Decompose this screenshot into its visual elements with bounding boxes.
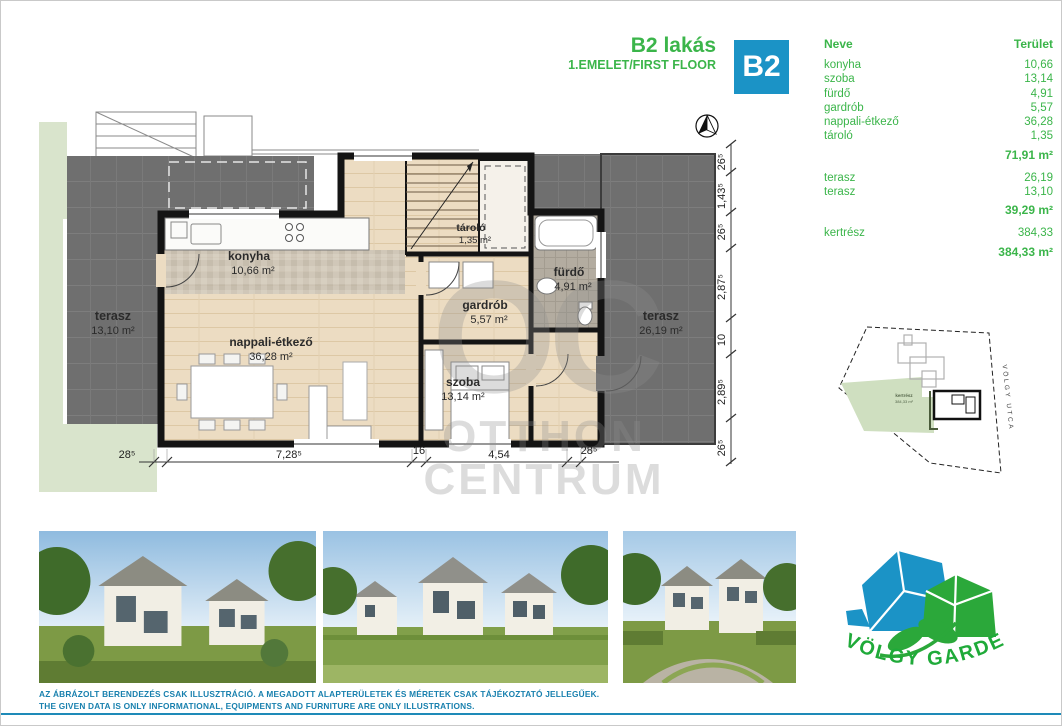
svg-text:1,35 m²: 1,35 m² <box>459 235 491 246</box>
label-terasz-left: terasz <box>95 309 131 323</box>
room-area: 5,57 <box>1031 101 1053 115</box>
area-table: Neve Terület konyha10,66 szoba13,14 fürd… <box>824 37 1053 259</box>
svg-text:13,14 m²: 13,14 m² <box>441 391 485 403</box>
table-row: gardrób5,57 <box>824 101 1053 115</box>
room-area: 1,35 <box>1031 129 1053 143</box>
street-name: VÖLGY UTCA <box>1001 364 1016 431</box>
room-area: 13,10 <box>1024 185 1053 199</box>
disclaimer-line-en: THE GIVEN DATA IS ONLY INFORMATIONAL, EQ… <box>39 701 799 713</box>
svg-text:28⁵: 28⁵ <box>119 449 136 461</box>
svg-text:36,28 m²: 36,28 m² <box>249 351 293 363</box>
room-area: 10,66 <box>1024 58 1053 72</box>
label-furdo: fürdő <box>554 265 585 279</box>
table-row: kertrész384,33 <box>824 226 1053 240</box>
label-tarolo: tároló <box>456 222 485 234</box>
table-row: fürdő4,91 <box>824 87 1053 101</box>
table-row: terasz13,10 <box>824 185 1053 199</box>
dimension-chain-right: 26⁵ 1,43⁵ 26⁵ 2,87⁵ 10 2,89⁵ 26⁵ <box>716 140 736 466</box>
svg-text:4,91 m²: 4,91 m² <box>554 281 592 293</box>
col-name-header: Neve <box>824 37 853 51</box>
subtotal-terrace: 39,29 m² <box>824 203 1053 217</box>
svg-text:4,54: 4,54 <box>488 449 509 461</box>
svg-text:10: 10 <box>716 334 728 346</box>
unit-badge: B2 <box>734 40 789 94</box>
room-name: gardrób <box>824 101 864 115</box>
exterior-photo-3 <box>623 531 796 683</box>
svg-text:1,43⁵: 1,43⁵ <box>716 183 728 209</box>
area-table-header: Neve Terület <box>824 37 1053 51</box>
exterior-photo-2 <box>323 531 608 683</box>
floorplan-sheet: B2 lakás 1.EMELET/FIRST FLOOR B2 Neve Te… <box>0 0 1062 726</box>
svg-text:2,87⁵: 2,87⁵ <box>716 274 728 300</box>
col-area-header: Terület <box>1014 37 1053 51</box>
room-name: fürdő <box>824 87 850 101</box>
page-title: B2 lakás <box>421 34 716 58</box>
kitchen-furniture <box>165 218 369 250</box>
floor-plan: OC OTTHON CENTRUM konyha 10,66 m² nappal… <box>39 104 744 504</box>
room-name: kertrész <box>824 226 865 240</box>
north-arrow-icon <box>696 115 718 137</box>
table-row: tároló1,35 <box>824 129 1053 143</box>
label-terasz-right: terasz <box>643 309 679 323</box>
disclaimer-line-hu: AZ ÁBRÁZOLT BERENDEZÉS CSAK ILLUSZTRÁCIÓ… <box>39 689 799 701</box>
room-area: 26,19 <box>1024 171 1053 185</box>
subtotal-apartment: 71,91 m² <box>824 148 1053 162</box>
table-row: nappali-étkező36,28 <box>824 115 1053 129</box>
footer-divider <box>1 713 1062 715</box>
room-name: terasz <box>824 185 855 199</box>
kitchen-tile-floor <box>165 250 405 294</box>
svg-text:7,28⁵: 7,28⁵ <box>276 449 302 461</box>
page-title-block: B2 lakás 1.EMELET/FIRST FLOOR <box>421 34 716 73</box>
svg-text:26⁵: 26⁵ <box>716 440 728 457</box>
svg-text:5,57 m²: 5,57 m² <box>470 314 508 326</box>
room-area: 4,91 <box>1031 87 1053 101</box>
label-konyha: konyha <box>228 249 270 263</box>
label-szoba: szoba <box>446 375 480 389</box>
svg-text:OTTHON: OTTHON <box>442 412 646 461</box>
site-plan: kertrész 384,33 m² VÖLGY UTCA <box>834 313 1026 483</box>
disclaimer: AZ ÁBRÁZOLT BERENDEZÉS CSAK ILLUSZTRÁCIÓ… <box>39 689 799 712</box>
site-garden-label: kertrész <box>895 393 913 398</box>
svg-text:26⁵: 26⁵ <box>716 224 728 241</box>
logo-drawing: VÖLGY GARDEN <box>834 539 1014 673</box>
room-name: terasz <box>824 171 855 185</box>
page-subtitle: 1.EMELET/FIRST FLOOR <box>421 58 716 73</box>
room-name: nappali-étkező <box>824 115 899 129</box>
room-name: tároló <box>824 129 853 143</box>
photo-illustration <box>323 531 608 683</box>
label-nappali: nappali-étkező <box>229 335 312 349</box>
svg-text:16: 16 <box>413 445 425 457</box>
floor-plan-drawing: OC OTTHON CENTRUM konyha 10,66 m² nappal… <box>39 104 744 504</box>
svg-text:26⁵: 26⁵ <box>716 154 728 171</box>
room-name: konyha <box>824 58 861 72</box>
photo-illustration <box>623 531 796 683</box>
svg-text:10,66 m²: 10,66 m² <box>231 265 275 277</box>
svg-text:13,10 m²: 13,10 m² <box>91 325 135 337</box>
svg-text:26,19 m²: 26,19 m² <box>639 325 683 337</box>
table-row: konyha10,66 <box>824 58 1053 72</box>
room-name: szoba <box>824 72 855 86</box>
room-area: 13,14 <box>1024 72 1053 86</box>
volgy-garden-logo: VÖLGY GARDEN <box>834 539 1014 673</box>
svg-text:2,89⁵: 2,89⁵ <box>716 379 728 405</box>
site-garden-area: 384,33 m² <box>895 399 914 404</box>
table-row: szoba13,14 <box>824 72 1053 86</box>
photo-illustration <box>39 531 316 683</box>
subtotal-garden: 384,33 m² <box>824 245 1053 259</box>
room-area: 36,28 <box>1024 115 1053 129</box>
svg-text:28⁵: 28⁵ <box>581 445 598 457</box>
garden-area <box>841 377 934 433</box>
exterior-photo-1 <box>39 531 316 683</box>
site-plan-drawing: kertrész 384,33 m² VÖLGY UTCA <box>834 313 1026 483</box>
carport-outline <box>96 112 479 158</box>
table-row: terasz26,19 <box>824 171 1053 185</box>
label-gardrob: gardrób <box>462 298 507 312</box>
room-area: 384,33 <box>1018 226 1053 240</box>
